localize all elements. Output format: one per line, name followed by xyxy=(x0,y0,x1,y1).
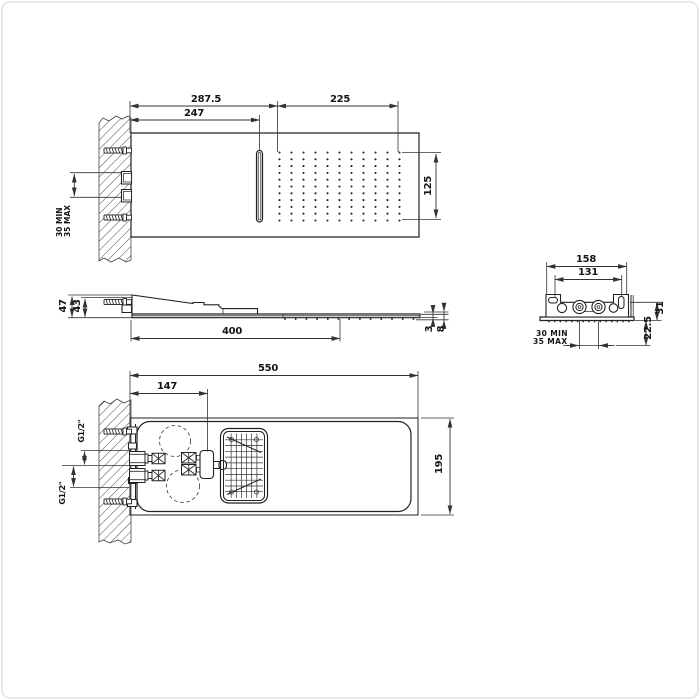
wall-anchor-screw xyxy=(104,498,132,505)
dim-label-225: 225 xyxy=(330,95,350,105)
dim-label-8: 8 xyxy=(437,326,447,333)
body-profile xyxy=(132,295,258,314)
wall-depth-max: 35 MAX xyxy=(64,205,72,237)
technical-drawing-page: 287.5 225 247 125 30 MIN 35 MAX 47 43 40… xyxy=(0,0,700,700)
wall-depth-max: 35 MAX xyxy=(533,338,568,346)
recess-outline xyxy=(130,418,418,515)
inlet-connection xyxy=(573,300,586,313)
wall-depth-label-front: 30 MIN 35 MAX xyxy=(56,205,72,237)
inlet-valve xyxy=(130,452,166,466)
plan-view xyxy=(62,371,454,544)
mixer-block xyxy=(200,451,214,479)
hose-coupling xyxy=(182,453,201,464)
dim-label-147: 147 xyxy=(157,382,177,392)
wall-anchor-screw xyxy=(104,428,132,435)
dim-label-550: 550 xyxy=(258,364,278,374)
drawing-canvas xyxy=(0,0,700,700)
side-view xyxy=(68,295,449,342)
dim-label-31: 31 xyxy=(656,301,666,314)
dim-label-22-5: 22.5 xyxy=(644,316,654,339)
hidden-circle xyxy=(160,426,191,457)
dim-label-247: 247 xyxy=(184,109,204,119)
dim-label-158: 158 xyxy=(576,255,596,265)
dim-label-287-5: 287.5 xyxy=(191,95,221,105)
dim-label-43: 43 xyxy=(73,299,83,312)
dim-label-400: 400 xyxy=(222,327,242,337)
thread-label-top: G1/2" xyxy=(77,419,87,442)
front-view xyxy=(70,101,441,262)
inlet-connection xyxy=(592,300,605,313)
dim-label-3: 3 xyxy=(425,326,435,333)
mount-ear xyxy=(129,443,137,449)
wall-anchor-screw xyxy=(104,299,132,306)
shower-body xyxy=(137,422,411,512)
thread-label-bottom: G1/2" xyxy=(58,481,68,504)
nozzle-ticks xyxy=(549,321,629,323)
dim-label-47: 47 xyxy=(59,299,69,312)
grille-grid xyxy=(225,434,263,499)
fixing-hole xyxy=(557,303,566,312)
wall-bracket xyxy=(122,305,132,313)
wall-anchor-screw xyxy=(104,147,132,154)
wall-depth-label-section: 30 MIN 35 MAX xyxy=(533,330,568,345)
inlet-valve xyxy=(130,469,166,483)
waterfall-slot xyxy=(257,151,263,223)
dim-label-131: 131 xyxy=(578,268,598,278)
hose-coupling xyxy=(182,465,201,476)
wall-hatch xyxy=(99,399,131,544)
spray-nozzle-grid xyxy=(278,151,400,221)
wall-anchor-screw xyxy=(104,214,132,221)
dim-label-195: 195 xyxy=(435,454,445,474)
fixing-hole xyxy=(609,304,618,313)
dim-label-125: 125 xyxy=(424,176,434,196)
